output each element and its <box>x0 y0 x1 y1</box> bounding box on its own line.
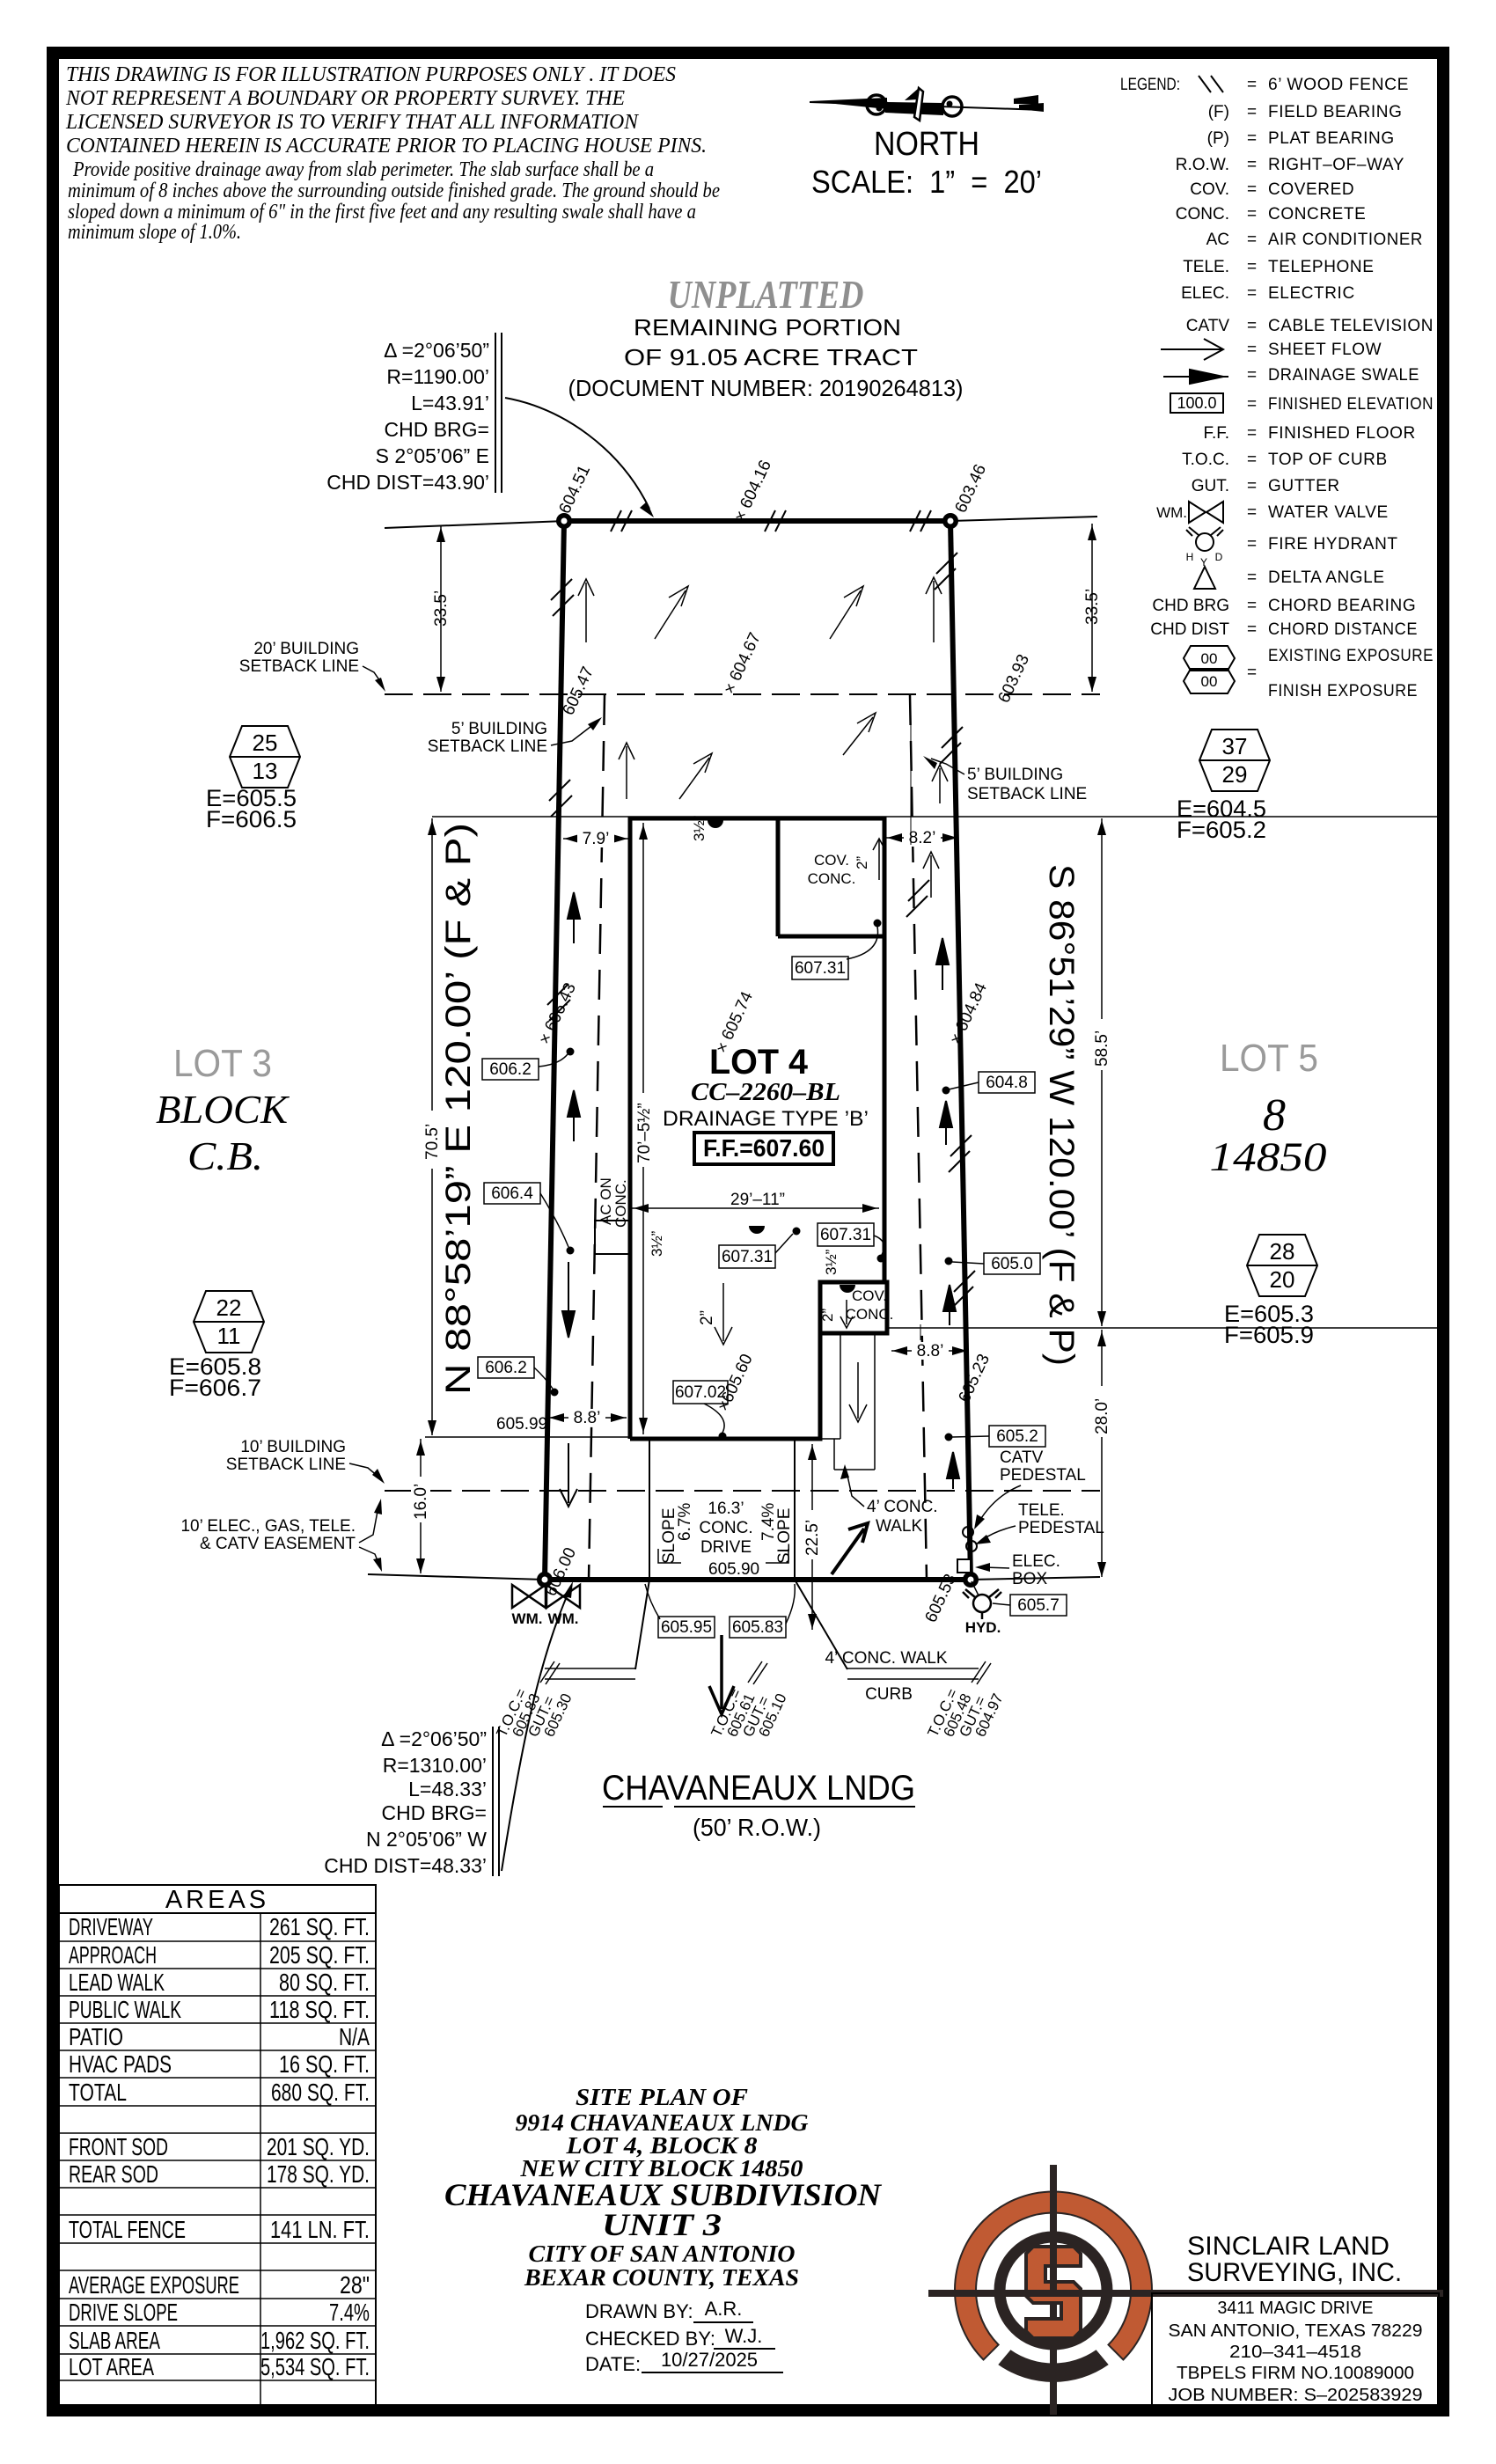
svg-text:8.8’: 8.8’ <box>574 1409 601 1427</box>
svg-text:CHORD DISTANCE: CHORD DISTANCE <box>1268 620 1418 639</box>
svg-text:GUTTER: GUTTER <box>1268 477 1340 495</box>
svg-text:11: 11 <box>217 1323 241 1349</box>
svg-text:1,962 SQ. FT.: 1,962 SQ. FT. <box>260 2327 370 2354</box>
svg-text:JOB NUMBER: S–202583929: JOB NUMBER: S–202583929 <box>1169 2386 1423 2405</box>
svg-text:=: = <box>1247 180 1258 199</box>
svg-text:DRAINAGE TYPE ’B’: DRAINAGE TYPE ’B’ <box>663 1107 869 1131</box>
svg-text:CC–2260–BL: CC–2260–BL <box>691 1079 840 1106</box>
svg-text:3411 MAGIC DRIVE: 3411 MAGIC DRIVE <box>1218 2299 1374 2318</box>
svg-text:Provide positive drainage away: Provide positive drainage away from slab… <box>72 158 654 181</box>
svg-text:CHD DIST=43.90’: CHD DIST=43.90’ <box>326 471 489 494</box>
svg-text:=: = <box>1247 395 1258 414</box>
svg-text:605.7: 605.7 <box>1017 1596 1060 1615</box>
svg-text:COV.: COV. <box>852 1287 887 1304</box>
svg-text:70’–5½”: 70’–5½” <box>635 1103 654 1163</box>
svg-text:SLOPE: SLOPE <box>775 1508 794 1564</box>
svg-text:DRIVE SLOPE: DRIVE SLOPE <box>69 2299 178 2326</box>
svg-text:16.3’: 16.3’ <box>708 1500 744 1518</box>
svg-text:AIR CONDITIONER: AIR CONDITIONER <box>1268 231 1423 249</box>
svg-text:605.90: 605.90 <box>708 1560 759 1579</box>
svg-text:FRONT SOD: FRONT SOD <box>69 2133 168 2160</box>
svg-text:EXISTING EXPOSURE: EXISTING EXPOSURE <box>1268 647 1434 665</box>
svg-text:AVERAGE EXPOSURE: AVERAGE EXPOSURE <box>69 2271 239 2299</box>
svg-text:CONCRETE: CONCRETE <box>1268 205 1366 224</box>
svg-text:REMAINING PORTION: REMAINING PORTION <box>634 314 901 341</box>
svg-text:3½”: 3½” <box>691 815 708 841</box>
svg-text:SETBACK LINE: SETBACK LINE <box>967 785 1087 803</box>
svg-text:5,534 SQ. FT.: 5,534 SQ. FT. <box>260 2353 370 2380</box>
svg-text:FIRE HYDRANT: FIRE HYDRANT <box>1268 535 1398 554</box>
svg-text:=: = <box>1247 424 1258 443</box>
svg-text:20: 20 <box>1270 1266 1295 1293</box>
svg-text:261 SQ. FT.: 261 SQ. FT. <box>269 1913 370 1940</box>
svg-text:605.99: 605.99 <box>496 1415 547 1434</box>
svg-text:WM.: WM. <box>512 1610 543 1627</box>
svg-text:W.J.: W.J. <box>725 2325 763 2347</box>
svg-text:HYD.: HYD. <box>965 1619 1001 1636</box>
svg-text:FINISH EXPOSURE: FINISH EXPOSURE <box>1268 682 1418 700</box>
svg-text:=: = <box>1247 597 1258 615</box>
svg-text:UNPLATTED: UNPLATTED <box>668 273 864 317</box>
svg-text:WM.: WM. <box>1156 504 1187 521</box>
svg-text:TELE.: TELE. <box>1018 1501 1065 1520</box>
svg-text:LOT AREA: LOT AREA <box>69 2353 154 2380</box>
svg-text:2”: 2” <box>819 1309 836 1322</box>
svg-text:SURVEYING, INC.: SURVEYING, INC. <box>1187 2258 1402 2287</box>
svg-text:R.O.W.: R.O.W. <box>1176 156 1229 174</box>
svg-text:N 2°05’06” W: N 2°05’06” W <box>366 1828 487 1851</box>
svg-text:=: = <box>1247 664 1258 682</box>
svg-text:COVERED: COVERED <box>1268 180 1354 199</box>
svg-text:S 86°51’29” W 120.00’ (F & P): S 86°51’29” W 120.00’ (F & P) <box>1042 864 1081 1366</box>
svg-text:OF 91.05 ACRE TRACT: OF 91.05 ACRE TRACT <box>624 344 918 370</box>
svg-text:(50’ R.O.W.): (50’ R.O.W.) <box>693 1814 821 1841</box>
svg-text:N 88°58’19” E 120.00’ (F & P): N 88°58’19” E 120.00’ (F & P) <box>439 823 478 1395</box>
svg-text:118 SQ. FT.: 118 SQ. FT. <box>269 1996 370 2023</box>
svg-text:TOTAL: TOTAL <box>69 2079 127 2106</box>
svg-text:CURB: CURB <box>865 1685 913 1704</box>
svg-text:4’ CONC. WALK: 4’ CONC. WALK <box>825 1649 947 1668</box>
svg-text:SHEET FLOW: SHEET FLOW <box>1268 341 1382 359</box>
svg-text:25: 25 <box>253 730 278 756</box>
svg-text:=: = <box>1247 258 1258 276</box>
svg-text:28: 28 <box>1270 1238 1295 1265</box>
svg-text:PLAT BEARING: PLAT BEARING <box>1268 129 1395 148</box>
svg-text:37: 37 <box>1222 733 1248 759</box>
svg-text:N/A: N/A <box>339 2023 370 2050</box>
svg-text:T.O.C.: T.O.C. <box>1182 451 1229 469</box>
svg-text:607.31: 607.31 <box>795 959 846 978</box>
svg-text:22.5’: 22.5’ <box>803 1520 822 1556</box>
svg-text:=: = <box>1247 477 1258 495</box>
svg-text:F.F.=607.60: F.F.=607.60 <box>703 1134 825 1162</box>
svg-text:DRIVE: DRIVE <box>700 1538 752 1557</box>
svg-text:LOT 3: LOT 3 <box>173 1042 272 1085</box>
svg-text:LEGEND:: LEGEND: <box>1120 76 1180 94</box>
svg-text:NOT REPRESENT A BOUNDARY OR PR: NOT REPRESENT A BOUNDARY OR PROPERTY SUR… <box>65 87 625 110</box>
svg-text:=: = <box>1247 535 1258 554</box>
svg-text:SETBACK LINE: SETBACK LINE <box>428 737 547 756</box>
svg-text:APPROACH: APPROACH <box>69 1941 157 1969</box>
svg-text:ELEC.: ELEC. <box>1181 284 1229 303</box>
svg-text:WALK: WALK <box>876 1517 922 1536</box>
svg-text:REAR SOD: REAR SOD <box>69 2160 158 2188</box>
svg-text:210–341–4518: 210–341–4518 <box>1229 2343 1361 2362</box>
svg-text:6’ WOOD FENCE: 6’ WOOD FENCE <box>1268 76 1409 94</box>
svg-text:100.0: 100.0 <box>1177 394 1216 412</box>
svg-text:605.95: 605.95 <box>661 1618 712 1637</box>
svg-text:FINISHED ELEVATION: FINISHED ELEVATION <box>1268 395 1434 414</box>
svg-text:16.0’: 16.0’ <box>412 1484 430 1520</box>
svg-text:TOTAL FENCE: TOTAL FENCE <box>69 2216 186 2243</box>
svg-text:605.2: 605.2 <box>996 1427 1038 1446</box>
svg-text:FIELD BEARING: FIELD BEARING <box>1268 103 1402 121</box>
svg-text:8.2’: 8.2’ <box>909 829 936 847</box>
svg-text:(F): (F) <box>1208 103 1229 121</box>
svg-text:8: 8 <box>1263 1090 1286 1140</box>
svg-text:CHD BRG=: CHD BRG= <box>382 1801 488 1824</box>
svg-text:607.31: 607.31 <box>820 1226 871 1244</box>
svg-text:CONC.: CONC. <box>1176 205 1229 224</box>
svg-text:S 2°05’06” E: S 2°05’06” E <box>376 444 489 467</box>
svg-text:=: = <box>1247 317 1258 335</box>
svg-text:605.83: 605.83 <box>732 1618 783 1637</box>
svg-text:4’ CONC.: 4’ CONC. <box>867 1498 938 1516</box>
svg-text:10/27/2025: 10/27/2025 <box>661 2349 758 2371</box>
svg-text:& CATV EASEMENT: & CATV EASEMENT <box>200 1535 356 1553</box>
svg-text:TELE.: TELE. <box>1183 258 1229 276</box>
svg-text:FINISHED FLOOR: FINISHED FLOOR <box>1268 424 1416 443</box>
svg-text:CHD DIST=48.33’: CHD DIST=48.33’ <box>324 1854 487 1877</box>
svg-text:H: H <box>1186 551 1194 563</box>
svg-text:28.0’: 28.0’ <box>1093 1398 1111 1434</box>
svg-text:CONC.: CONC. <box>808 870 856 887</box>
svg-text:WM.: WM. <box>548 1610 579 1627</box>
svg-text:=: = <box>1247 103 1258 121</box>
svg-text:HVAC PADS: HVAC PADS <box>69 2050 172 2078</box>
svg-text:=: = <box>1247 76 1258 94</box>
svg-text:00: 00 <box>1201 650 1218 667</box>
svg-text:F=606.5: F=606.5 <box>206 806 297 832</box>
svg-text:680 SQ. FT.: 680 SQ. FT. <box>271 2079 370 2106</box>
svg-text:PEDESTAL: PEDESTAL <box>1000 1466 1086 1485</box>
svg-text:7.9’: 7.9’ <box>583 830 610 848</box>
svg-text:CHECKED BY:: CHECKED BY: <box>585 2328 715 2350</box>
svg-text:178 SQ. YD.: 178 SQ. YD. <box>267 2160 370 2188</box>
svg-text:D: D <box>1215 551 1223 563</box>
svg-text:80 SQ. FT.: 80 SQ. FT. <box>279 1969 370 1996</box>
svg-text:10’ ELEC., GAS, TELE.: 10’ ELEC., GAS, TELE. <box>180 1517 356 1536</box>
svg-text:CATV: CATV <box>1000 1448 1044 1467</box>
svg-text:6.7%: 6.7% <box>676 1503 694 1541</box>
svg-text:CONC.: CONC. <box>699 1519 752 1537</box>
svg-text:SETBACK LINE: SETBACK LINE <box>226 1456 346 1474</box>
svg-text:SAN ANTONIO, TEXAS 78229: SAN ANTONIO, TEXAS 78229 <box>1169 2321 1423 2341</box>
svg-text:5’ BUILDING: 5’ BUILDING <box>967 766 1063 784</box>
svg-text:7.4%: 7.4% <box>329 2299 370 2326</box>
svg-text:DRIVEWAY: DRIVEWAY <box>69 1913 153 1940</box>
svg-text:ELECTRIC: ELECTRIC <box>1268 284 1355 303</box>
svg-text:UNIT 3: UNIT 3 <box>602 2207 722 2242</box>
svg-text:R=1310.00’: R=1310.00’ <box>383 1754 487 1777</box>
svg-text:CHAVANEAUX LNDG: CHAVANEAUX LNDG <box>602 1769 915 1808</box>
svg-text:SITE PLAN OF: SITE PLAN OF <box>576 2084 748 2110</box>
svg-text:CHD BRG: CHD BRG <box>1152 597 1229 615</box>
svg-text:PUBLIC WALK: PUBLIC WALK <box>69 1996 181 2023</box>
svg-text:CHD DIST: CHD DIST <box>1150 620 1229 639</box>
svg-text:LEAD WALK: LEAD WALK <box>69 1969 165 1996</box>
svg-text:=: = <box>1247 156 1258 174</box>
svg-text:8.8’: 8.8’ <box>917 1342 944 1360</box>
svg-text:(P): (P) <box>1207 129 1229 148</box>
svg-text:=: = <box>1247 231 1258 249</box>
svg-text:CONC.: CONC. <box>612 1179 629 1228</box>
svg-text:2”: 2” <box>854 856 870 869</box>
svg-text:TOP OF CURB: TOP OF CURB <box>1268 451 1388 469</box>
svg-text:=: = <box>1247 366 1258 385</box>
svg-text:SCALE: 1” = 20’: SCALE: 1” = 20’ <box>811 164 1042 200</box>
svg-text:=: = <box>1247 503 1258 522</box>
svg-text:00: 00 <box>1201 673 1218 690</box>
svg-text:29’–11”: 29’–11” <box>730 1191 785 1209</box>
svg-text:606.2: 606.2 <box>489 1060 532 1079</box>
svg-text:PEDESTAL: PEDESTAL <box>1018 1519 1104 1537</box>
svg-text:COV.: COV. <box>814 852 849 869</box>
svg-text:205 SQ. FT.: 205 SQ. FT. <box>269 1941 370 1969</box>
svg-text:SINCLAIR LAND: SINCLAIR LAND <box>1187 2232 1390 2261</box>
svg-text:WATER VALVE: WATER VALVE <box>1268 503 1389 522</box>
svg-text:22: 22 <box>216 1294 242 1321</box>
svg-text:ELEC.: ELEC. <box>1012 1552 1060 1571</box>
svg-text:BOX: BOX <box>1012 1570 1047 1588</box>
svg-text:COV.: COV. <box>1190 180 1229 199</box>
svg-text:L=48.33’: L=48.33’ <box>408 1778 487 1800</box>
svg-text:33.5’: 33.5’ <box>1083 589 1102 625</box>
svg-text:2”: 2” <box>698 1310 716 1325</box>
svg-text:L=43.91’: L=43.91’ <box>411 392 489 414</box>
svg-text:CHD BRG=: CHD BRG= <box>385 418 490 441</box>
svg-text:606.2: 606.2 <box>485 1359 527 1377</box>
svg-text:58.5’: 58.5’ <box>1093 1030 1111 1067</box>
svg-text:RIGHT–OF–WAY: RIGHT–OF–WAY <box>1268 156 1404 174</box>
svg-text:A.R.: A.R. <box>705 2298 743 2320</box>
svg-text:29: 29 <box>1222 761 1248 788</box>
svg-text:F.F.: F.F. <box>1203 424 1229 443</box>
svg-text:THIS DRAWING IS FOR ILLUSTRATI: THIS DRAWING IS FOR ILLUSTRATION PURPOSE… <box>66 63 676 86</box>
svg-text:NORTH: NORTH <box>874 126 979 163</box>
svg-text:CITY OF SAN ANTONIO: CITY OF SAN ANTONIO <box>529 2240 796 2267</box>
svg-text:CONTAINED HEREIN IS ACCURATE P: CONTAINED HEREIN IS ACCURATE PRIOR TO PL… <box>66 135 707 158</box>
svg-text:F=606.7: F=606.7 <box>169 1375 261 1401</box>
svg-text:AREAS: AREAS <box>165 1886 269 1914</box>
svg-text:=: = <box>1247 568 1258 587</box>
svg-text:F=605.2: F=605.2 <box>1177 817 1266 843</box>
svg-text:CABLE TELEVISION: CABLE TELEVISION <box>1268 317 1434 335</box>
svg-text:=: = <box>1247 451 1258 469</box>
svg-text:R=1190.00’: R=1190.00’ <box>386 365 489 388</box>
svg-text:DRAWN BY:: DRAWN BY: <box>585 2300 693 2322</box>
svg-text:606.4: 606.4 <box>491 1184 533 1203</box>
svg-text:607.31: 607.31 <box>722 1248 773 1266</box>
svg-text:33.5’: 33.5’ <box>432 590 451 627</box>
svg-text:=: = <box>1247 341 1258 359</box>
svg-text:Δ =2°06’50”: Δ =2°06’50” <box>381 1727 487 1750</box>
svg-text:DRAINAGE SWALE: DRAINAGE SWALE <box>1268 366 1419 385</box>
svg-text:SETBACK LINE: SETBACK LINE <box>239 657 359 676</box>
svg-text:C.B.: C.B. <box>187 1133 263 1178</box>
svg-text:=: = <box>1247 129 1258 148</box>
svg-text:604.8: 604.8 <box>986 1074 1028 1092</box>
svg-text:PATIO: PATIO <box>69 2023 123 2050</box>
svg-text:F=605.9: F=605.9 <box>1224 1322 1314 1348</box>
svg-text:CONC.: CONC. <box>846 1306 894 1323</box>
svg-text:141 LN. FT.: 141 LN. FT. <box>270 2216 370 2243</box>
svg-text:DELTA ANGLE: DELTA ANGLE <box>1268 568 1385 587</box>
svg-text:(DOCUMENT NUMBER: 20190264813): (DOCUMENT NUMBER: 20190264813) <box>568 375 964 401</box>
svg-text:3½”: 3½” <box>823 1249 840 1275</box>
svg-text:=: = <box>1247 205 1258 224</box>
svg-text:DATE:: DATE: <box>585 2353 641 2375</box>
svg-text:GUT.: GUT. <box>1192 477 1229 495</box>
svg-text:BEXAR COUNTY, TEXAS: BEXAR COUNTY, TEXAS <box>524 2264 799 2291</box>
svg-text:10’ BUILDING: 10’ BUILDING <box>240 1438 346 1456</box>
svg-text:28": 28" <box>340 2271 370 2299</box>
svg-text:LICENSED SURVEYOR IS TO VERIFY: LICENSED SURVEYOR IS TO VERIFY THAT ALL … <box>65 111 640 134</box>
svg-text:minimum of 8 inches above the: minimum of 8 inches above the surroundin… <box>68 180 720 202</box>
svg-text:Δ =2°06’50”: Δ =2°06’50” <box>384 339 489 362</box>
svg-text:minimum slope of 1.0%.: minimum slope of 1.0%. <box>68 221 241 244</box>
svg-text:14850: 14850 <box>1210 1134 1327 1180</box>
svg-text:5’ BUILDING: 5’ BUILDING <box>451 720 547 738</box>
svg-text:3½”: 3½” <box>649 1230 665 1257</box>
svg-text:=: = <box>1247 284 1258 303</box>
svg-text:SLAB AREA: SLAB AREA <box>69 2327 160 2354</box>
svg-text:16 SQ. FT.: 16 SQ. FT. <box>279 2050 370 2078</box>
svg-text:20’ BUILDING: 20’ BUILDING <box>253 640 359 658</box>
svg-text:605.0: 605.0 <box>991 1255 1033 1273</box>
svg-text:TBPELS FIRM NO.10089000: TBPELS FIRM NO.10089000 <box>1177 2364 1414 2383</box>
svg-text:TELEPHONE: TELEPHONE <box>1268 258 1375 276</box>
svg-text:13: 13 <box>253 758 278 784</box>
svg-text:LOT 5: LOT 5 <box>1220 1037 1318 1080</box>
svg-text:CATV: CATV <box>1186 317 1230 335</box>
svg-text:=: = <box>1247 620 1258 639</box>
svg-text:201 SQ. YD.: 201 SQ. YD. <box>267 2133 370 2160</box>
svg-text:AC: AC <box>1206 231 1229 249</box>
svg-text:CHORD BEARING: CHORD BEARING <box>1268 597 1416 615</box>
svg-text:BLOCK: BLOCK <box>156 1087 290 1132</box>
